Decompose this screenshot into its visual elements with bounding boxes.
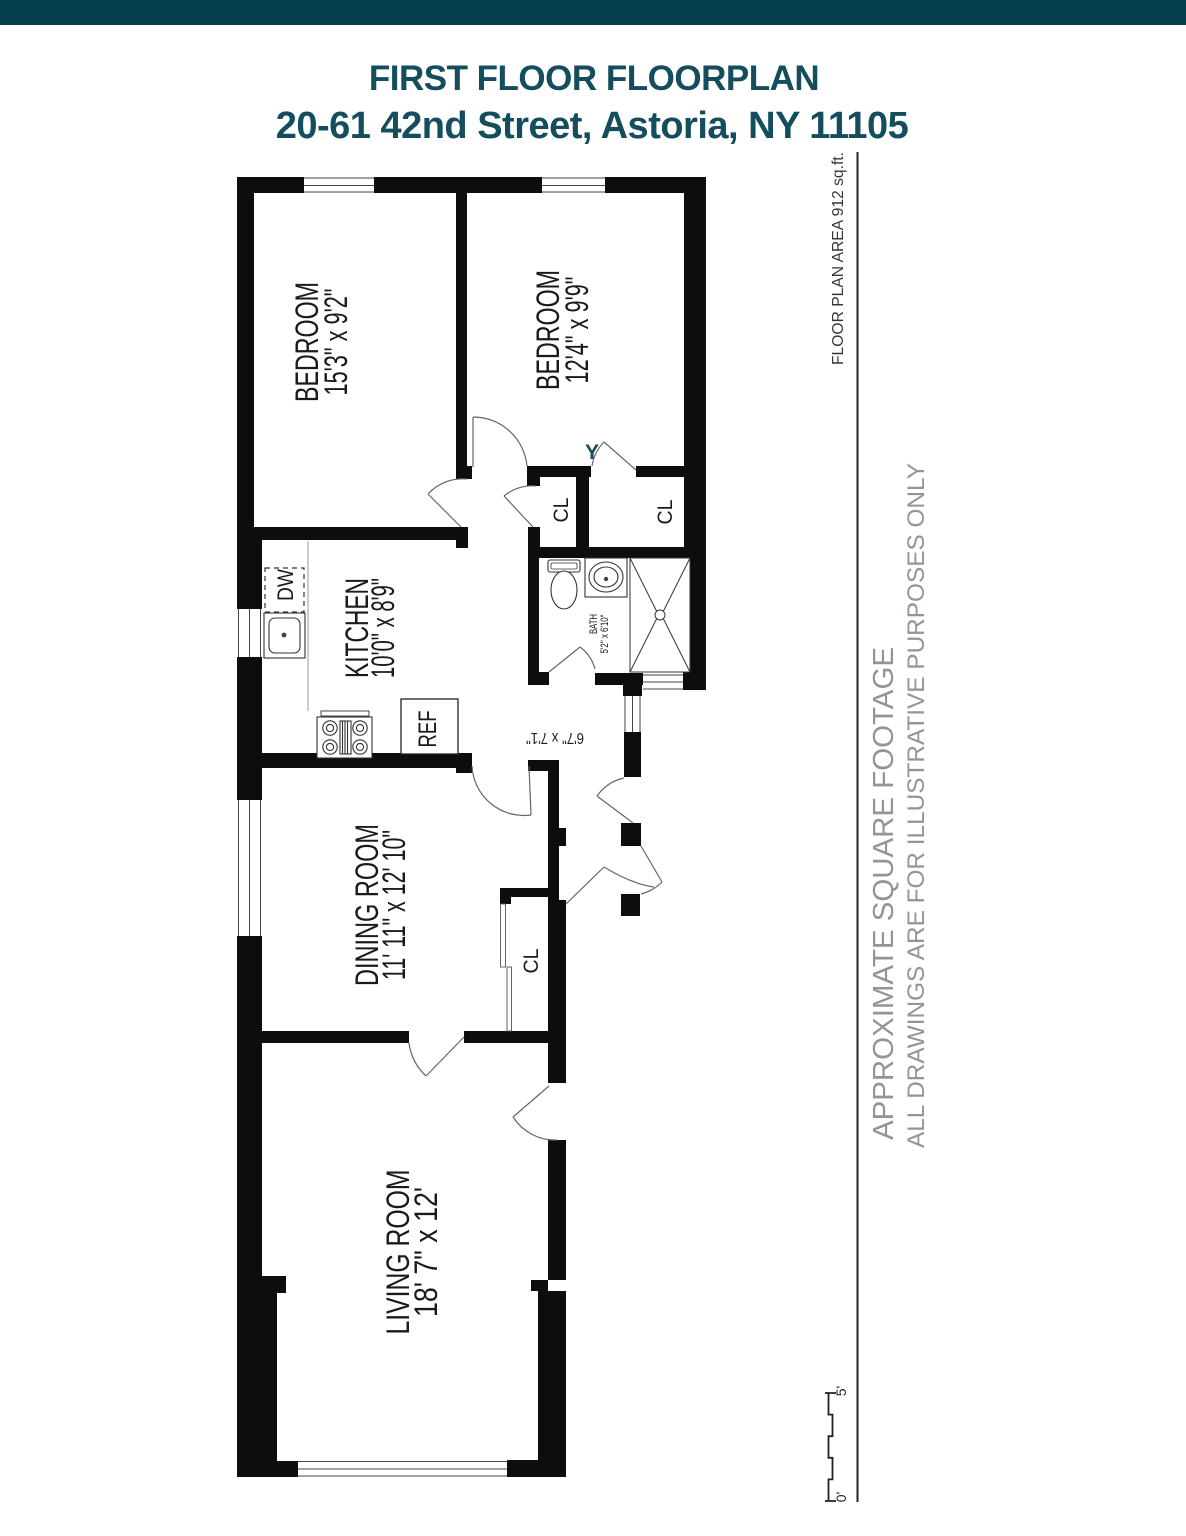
svg-text:20-61 42nd Street, Astoria, NY: 20-61 42nd Street, Astoria, NY 11105 [276, 105, 909, 147]
svg-text:ALL DRAWINGS ARE FOR ILLUSTRAT: ALL DRAWINGS ARE FOR ILLUSTRATIVE PURPOS… [903, 463, 930, 1148]
svg-text:5': 5' [833, 1386, 849, 1396]
svg-text:6'7" x 7'1": 6'7" x 7'1" [526, 729, 584, 746]
svg-text:11' 11" x 12' 10": 11' 11" x 12' 10" [376, 830, 412, 980]
svg-text:CL: CL [654, 500, 677, 525]
svg-text:18' 7" x 12': 18' 7" x 12' [408, 1187, 444, 1317]
svg-text:APPROXIMATE SQUARE FOOTAGE: APPROXIMATE SQUARE FOOTAGE [868, 647, 900, 1140]
svg-text:FLOOR PLAN AREA 912 sq.ft.: FLOOR PLAN AREA 912 sq.ft. [830, 152, 847, 365]
svg-text:CL: CL [550, 498, 573, 523]
svg-text:REF: REF [414, 711, 442, 748]
svg-text:15'3" x 9'2": 15'3" x 9'2" [318, 289, 354, 396]
svg-text:0': 0' [833, 1492, 849, 1502]
svg-text:DW: DW [274, 568, 299, 601]
svg-text:FIRST FLOOR FLOORPLAN: FIRST FLOOR FLOORPLAN [369, 59, 819, 98]
svg-text:12'4" x 9'9": 12'4" x 9'9" [559, 277, 595, 384]
svg-text:5'2" x 6'10": 5'2" x 6'10" [599, 614, 612, 653]
svg-text:Y: Y [585, 441, 599, 464]
svg-text:CL: CL [520, 949, 543, 974]
svg-text:10'0" x 8'9": 10'0" x 8'9" [365, 578, 401, 678]
